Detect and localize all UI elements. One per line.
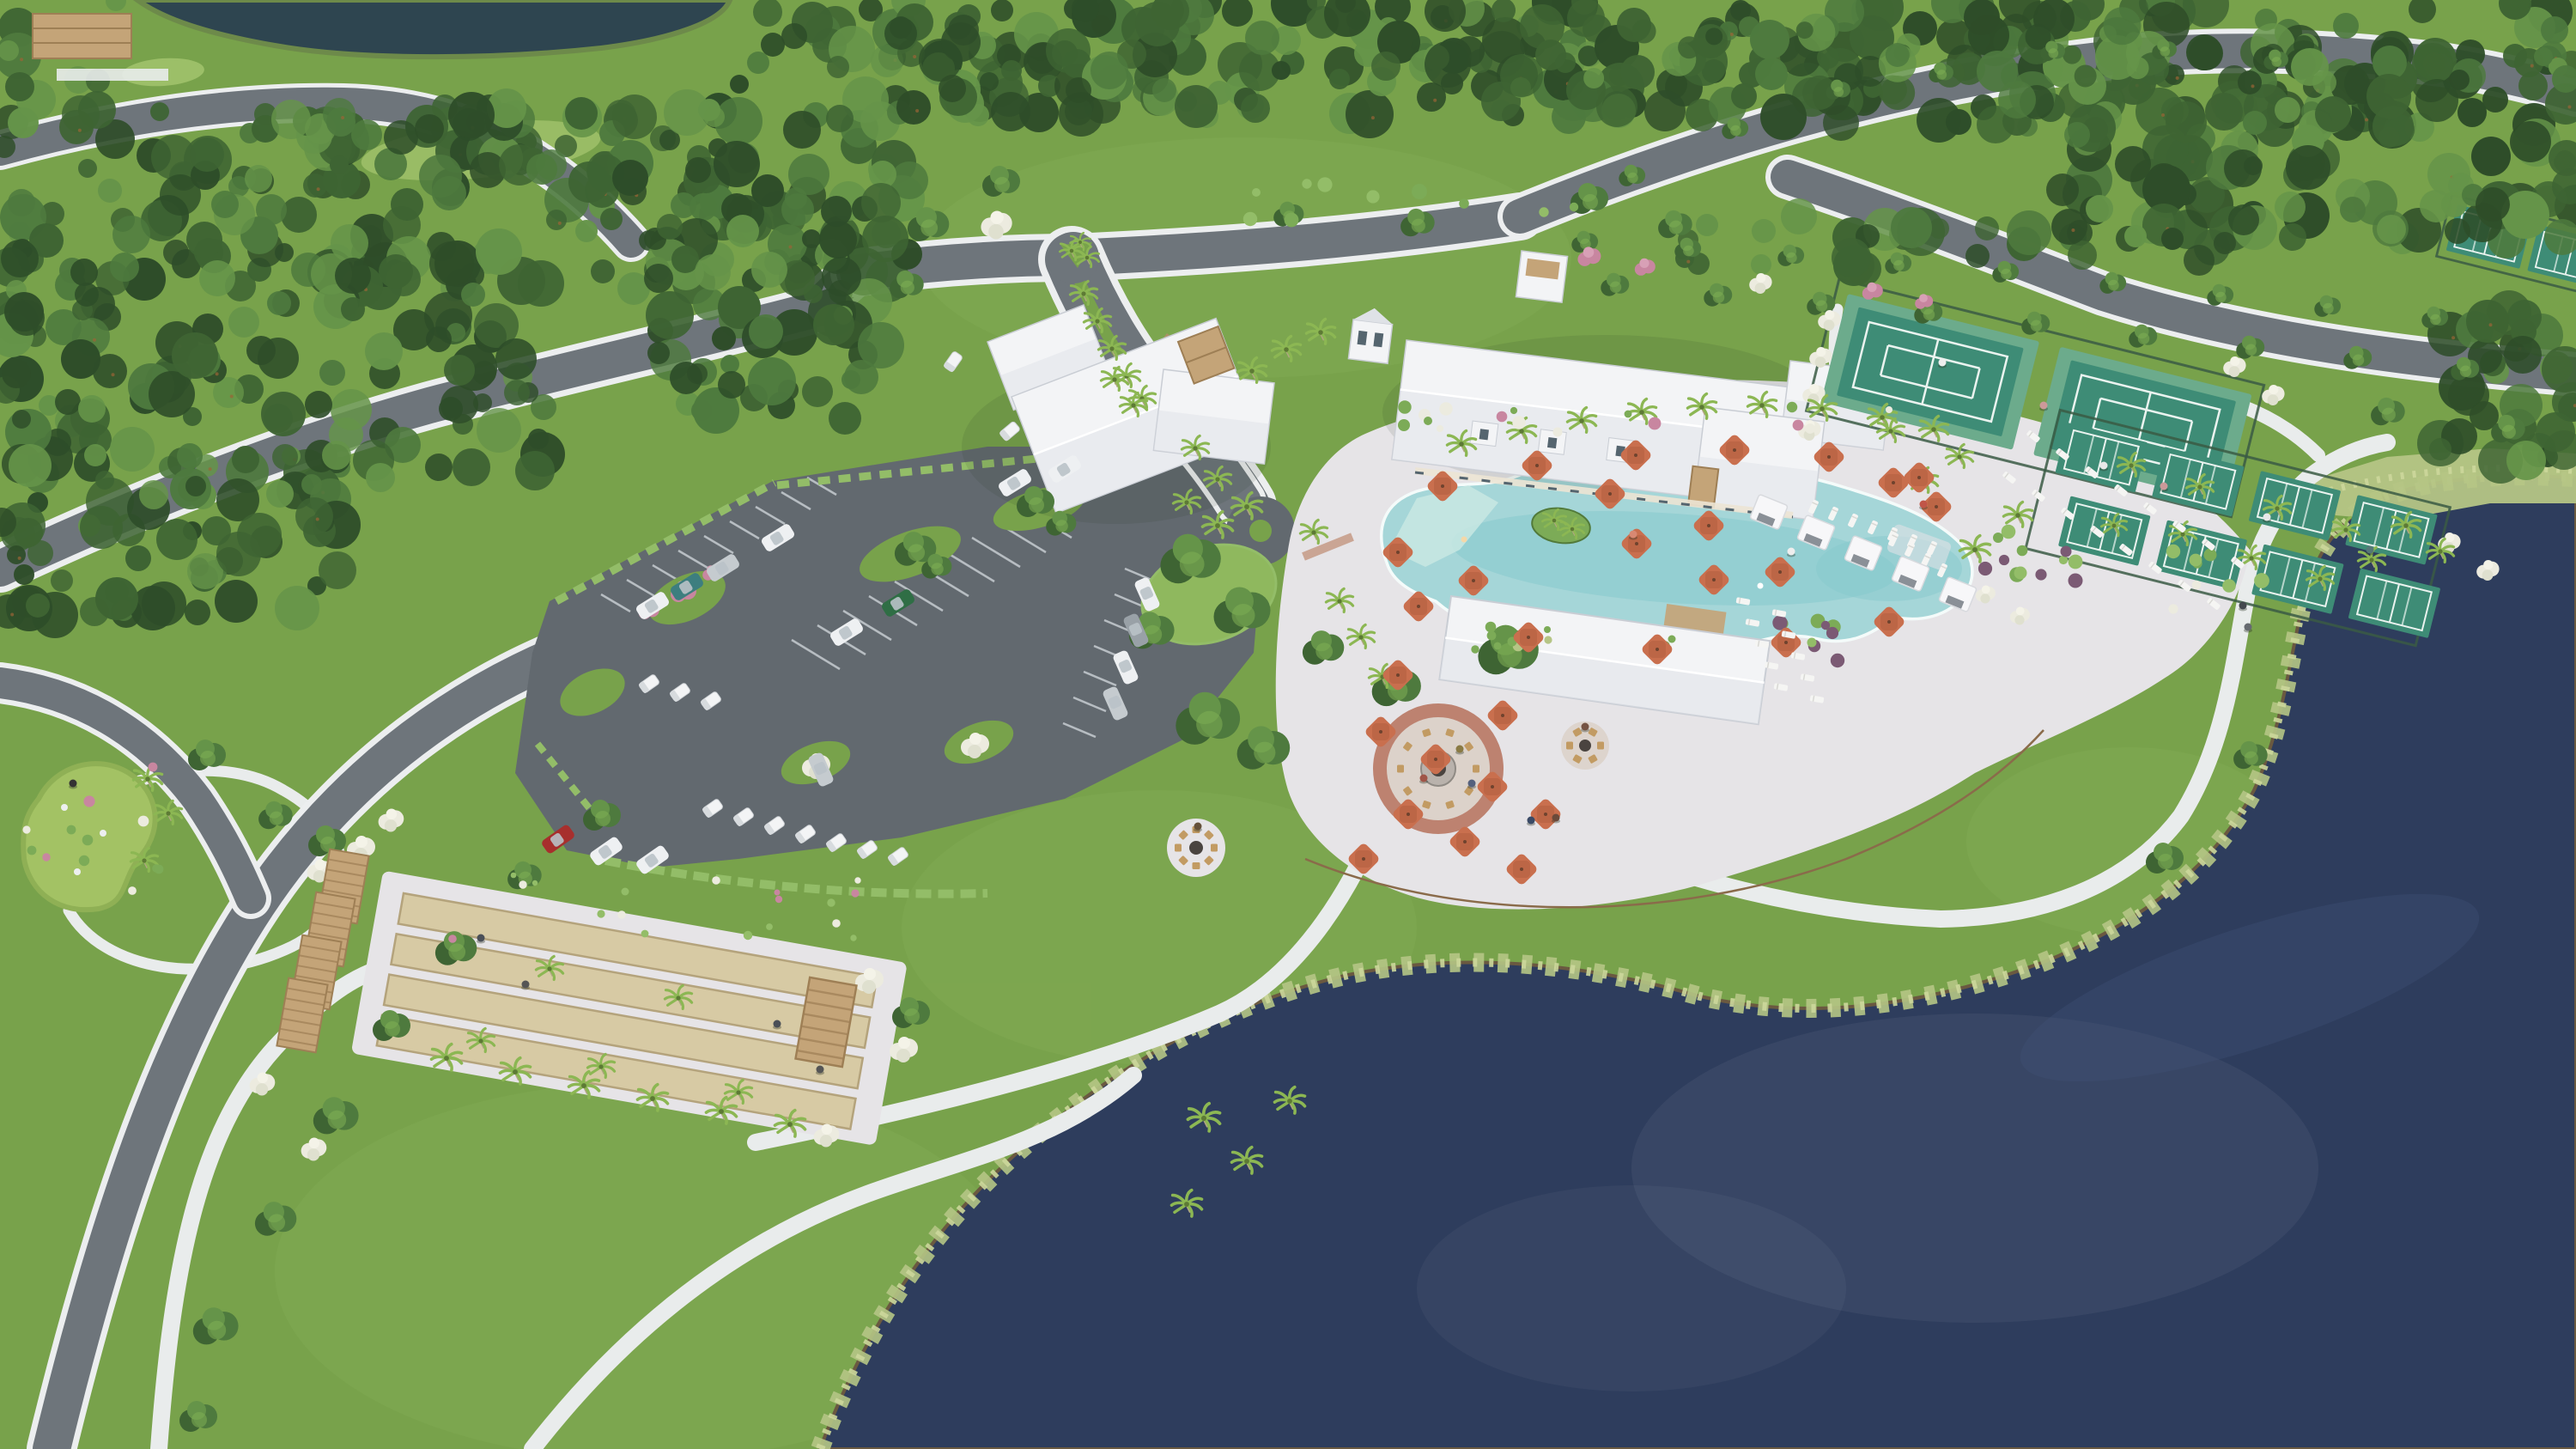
forest-canopy	[271, 100, 311, 139]
forest-canopy	[75, 283, 99, 307]
forest-canopy	[2372, 106, 2414, 147]
forest-canopy	[391, 188, 423, 221]
forest-canopy	[319, 360, 345, 386]
forest-canopy	[528, 429, 549, 449]
pine-trunk	[1433, 99, 1437, 102]
planting-bed	[1821, 621, 1830, 630]
forest-canopy	[515, 451, 555, 490]
bocce-flowers	[511, 873, 517, 879]
forest-canopy	[110, 427, 155, 472]
person	[1788, 548, 1795, 556]
foundation-planting	[1805, 423, 1815, 434]
forest-canopy	[841, 370, 860, 389]
person	[1630, 531, 1637, 539]
forest-canopy	[2445, 218, 2470, 244]
forest-canopy	[2506, 441, 2546, 480]
foundation-planting	[1793, 420, 1804, 431]
pine-trunk	[112, 373, 115, 376]
forest-canopy	[690, 193, 717, 221]
forest-canopy	[704, 107, 725, 127]
forest-canopy	[2340, 197, 2366, 222]
forest-canopy	[2275, 97, 2300, 123]
street-plantings	[1412, 184, 1427, 199]
person	[1456, 746, 1464, 753]
foundation-planting	[1398, 400, 1411, 413]
green-plantings	[79, 855, 89, 866]
forest-canopy	[2115, 146, 2151, 182]
person	[477, 935, 485, 942]
forest-canopy	[1046, 28, 1091, 73]
forest-canopy	[1891, 207, 1932, 248]
adirondack-chair	[1566, 742, 1573, 750]
forest-canopy	[477, 408, 521, 453]
planting-bed	[2192, 581, 2202, 590]
forest-canopy	[991, 92, 1030, 131]
forest-canopy	[78, 159, 97, 178]
forest-canopy	[1272, 61, 1291, 80]
forest-canopy	[2161, 228, 2184, 250]
forest-canopy	[2051, 209, 2087, 245]
planting-bed	[2014, 567, 2027, 580]
forest-canopy	[275, 586, 319, 630]
forest-canopy	[2184, 245, 2215, 276]
forest-canopy	[232, 446, 259, 473]
planting-bed	[2017, 545, 2028, 557]
pine-trunk	[230, 394, 234, 398]
planting-bed	[2254, 573, 2269, 588]
forest-canopy	[429, 241, 474, 286]
forest-canopy	[1886, 43, 1910, 67]
forest-canopy	[827, 56, 849, 78]
forest-canopy	[426, 326, 452, 352]
pool-grasses	[1487, 631, 1497, 641]
forest-canopy	[829, 402, 861, 435]
pine-trunk	[915, 109, 919, 113]
forest-canopy	[896, 90, 931, 125]
planting-bed	[1807, 638, 1817, 648]
forest-canopy	[2534, 47, 2553, 66]
planting-bed	[1978, 562, 1992, 575]
pool-grasses	[1485, 622, 1497, 633]
pool-grasses	[1544, 626, 1551, 633]
foundation-planting	[1553, 428, 1563, 437]
forest-canopy	[2510, 121, 2551, 162]
forest-canopy	[1975, 216, 1999, 240]
pine-trunk	[2071, 228, 2075, 232]
person	[2366, 546, 2374, 554]
forest-canopy	[826, 105, 854, 132]
person	[1420, 775, 1428, 782]
forest-canopy	[295, 497, 333, 535]
forest-canopy	[1731, 83, 1757, 109]
pine-trunk	[2530, 64, 2534, 68]
forest-canopy	[1977, 51, 2018, 92]
forest-canopy	[1678, 36, 1700, 58]
bocce-flowers	[622, 888, 629, 896]
bocce-flowers	[832, 919, 841, 928]
green-plantings	[83, 795, 94, 807]
forest-canopy	[671, 246, 699, 273]
forest-canopy	[1066, 77, 1091, 103]
forest-canopy	[647, 342, 670, 364]
forest-canopy	[2279, 223, 2306, 251]
forest-canopy	[323, 98, 355, 131]
forest-canopy	[2429, 438, 2451, 460]
forest-canopy	[2046, 174, 2079, 206]
forest-canopy	[12, 410, 31, 429]
adirondack-chair	[1397, 765, 1404, 773]
foundation-planting	[1886, 406, 1893, 413]
forest-canopy	[748, 357, 796, 405]
forest-canopy	[2458, 98, 2487, 127]
forest-canopy	[685, 157, 711, 183]
forest-canopy	[980, 72, 999, 91]
forest-canopy	[695, 254, 731, 290]
person	[1552, 814, 1560, 822]
bocce-flowers	[597, 910, 605, 917]
forest-canopy	[8, 107, 39, 138]
forest-canopy	[177, 443, 203, 469]
person	[1582, 723, 1589, 731]
pine-trunk	[341, 116, 344, 119]
forest-canopy	[1329, 69, 1350, 89]
forest-canopy	[1425, 41, 1471, 88]
forest-canopy	[1965, 244, 1990, 268]
pine-trunk	[78, 129, 82, 132]
forest-canopy	[1346, 90, 1394, 138]
forest-canopy	[2503, 44, 2527, 68]
forest-canopy	[425, 454, 453, 481]
forest-canopy	[190, 137, 224, 172]
forest-canopy	[149, 371, 195, 417]
forest-canopy	[2068, 240, 2097, 270]
foundation-planting	[1625, 411, 1632, 418]
forest-canopy	[185, 600, 210, 625]
planting-bed	[2069, 574, 2083, 588]
person	[2160, 483, 2168, 490]
forest-canopy	[256, 194, 287, 225]
forest-canopy	[453, 448, 490, 486]
pine-trunk	[2567, 106, 2571, 109]
forest-canopy	[565, 97, 598, 130]
pine-trunk	[2161, 113, 2165, 117]
forest-canopy	[2507, 300, 2542, 334]
forest-canopy	[2244, 156, 2263, 175]
forest-canopy	[216, 532, 261, 576]
forest-canopy	[95, 471, 114, 490]
forest-canopy	[1245, 21, 1279, 55]
forest-canopy	[95, 577, 138, 620]
forest-canopy	[70, 259, 98, 286]
forest-canopy	[51, 569, 73, 592]
pine-trunk	[789, 246, 793, 249]
forest-canopy	[156, 519, 197, 560]
forest-canopy	[335, 258, 371, 294]
forest-canopy	[691, 400, 712, 421]
forest-canopy	[2186, 34, 2222, 70]
forest-canopy	[2243, 111, 2267, 135]
forest-canopy	[186, 222, 222, 258]
forest-canopy	[781, 23, 807, 49]
green-plantings	[42, 853, 50, 861]
forest-canopy	[600, 208, 623, 230]
forest-canopy	[26, 594, 50, 618]
forest-canopy	[305, 391, 332, 418]
forest-canopy	[2471, 137, 2511, 176]
street-plantings	[1302, 179, 1311, 188]
planting-bed	[2190, 554, 2202, 567]
street-plantings	[1252, 188, 1261, 197]
forest-canopy	[322, 441, 351, 470]
forest-canopy	[2476, 187, 2510, 222]
forest-canopy	[1371, 52, 1400, 81]
foundation-planting	[1437, 425, 1443, 432]
forest-canopy	[802, 376, 833, 407]
pine-trunk	[10, 613, 14, 617]
forest-canopy	[1620, 55, 1655, 89]
foundation-planting	[1398, 419, 1410, 431]
forest-canopy	[1567, 0, 1605, 37]
forest-canopy	[2166, 101, 2207, 143]
forest-canopy	[1644, 90, 1686, 131]
adirondack-chair	[1473, 765, 1479, 773]
pine-trunk	[2489, 323, 2493, 326]
green-plantings	[128, 886, 137, 895]
pine-trunk	[1686, 260, 1690, 264]
forest-canopy	[2423, 52, 2445, 75]
forest-canopy	[939, 75, 966, 102]
pine-trunk	[209, 467, 212, 471]
forest-canopy	[2238, 70, 2262, 94]
forest-canopy	[726, 215, 759, 247]
forest-canopy	[341, 297, 365, 321]
bocce-flowers	[712, 876, 720, 885]
foundation-planting	[1497, 411, 1508, 423]
adirondack-chair	[1175, 844, 1182, 852]
rendering-canvas	[0, 0, 2576, 1449]
adirondack-chair	[1597, 742, 1604, 750]
adirondack-chair	[1193, 862, 1200, 869]
forest-canopy	[749, 314, 783, 349]
forest-canopy	[1796, 21, 1814, 39]
bocce-flowers	[851, 889, 859, 897]
person	[2245, 624, 2252, 631]
bocce-flowers	[850, 935, 856, 941]
forest-canopy	[351, 119, 382, 150]
pine-trunk	[1730, 33, 1734, 36]
foundation-planting	[1424, 417, 1432, 425]
pine-trunk	[93, 338, 96, 342]
forest-canopy	[612, 94, 657, 139]
forest-canopy	[664, 89, 710, 136]
bocce-flowers	[854, 877, 860, 883]
pool-grasses	[1494, 642, 1502, 650]
forest-canopy	[439, 397, 463, 421]
forest-canopy	[2205, 93, 2243, 131]
bocce-flowers	[617, 910, 626, 919]
forest-canopy	[59, 110, 94, 144]
forest-canopy	[822, 257, 861, 296]
foundation-planting	[1649, 417, 1662, 430]
forest-canopy	[319, 551, 356, 589]
forest-canopy	[761, 33, 785, 57]
person	[2263, 514, 2271, 521]
forest-canopy	[2466, 300, 2509, 343]
forest-canopy	[1091, 52, 1128, 89]
planting-bed	[2222, 579, 2236, 593]
foundation-planting	[1439, 402, 1452, 415]
pine-trunk	[2451, 336, 2455, 339]
person	[817, 1066, 824, 1074]
forest-canopy	[1, 240, 39, 277]
street-plantings	[1285, 213, 1299, 228]
forest-canopy	[55, 389, 81, 415]
forest-canopy	[504, 380, 530, 405]
person	[2239, 602, 2247, 610]
bocce-flowers	[775, 896, 782, 903]
pine-trunk	[2251, 84, 2255, 88]
planting-bed	[2002, 525, 2016, 539]
forest-canopy	[228, 307, 259, 338]
bocce-flowers	[641, 930, 649, 938]
forest-canopy	[5, 72, 34, 101]
planting-bed	[2061, 546, 2072, 557]
green-plantings	[138, 816, 149, 827]
forest-canopy	[687, 363, 708, 384]
forest-canopy	[1760, 94, 1807, 140]
person	[522, 981, 530, 989]
forest-canopy	[150, 102, 169, 121]
forest-canopy	[1752, 219, 1776, 243]
foundation-planting	[1510, 407, 1517, 414]
forest-canopy	[781, 193, 814, 226]
adirondack-chair	[1211, 844, 1218, 852]
forest-canopy	[245, 165, 272, 192]
forest-canopy	[461, 283, 485, 307]
forest-canopy	[2, 359, 31, 388]
aerial-rendering	[0, 0, 2576, 1449]
forest-canopy	[14, 518, 43, 547]
forest-canopy	[331, 389, 372, 430]
person	[1939, 359, 1947, 367]
pine-trunk	[1371, 116, 1375, 119]
forest-canopy	[80, 506, 123, 549]
forest-canopy	[1781, 198, 1817, 234]
forest-canopy	[2075, 65, 2097, 88]
forest-canopy	[1417, 82, 1446, 112]
forest-canopy	[821, 196, 852, 227]
forest-canopy	[1152, 78, 1176, 102]
forest-canopy	[2228, 204, 2259, 235]
forest-canopy	[884, 17, 917, 50]
pool-grasses	[1471, 645, 1479, 653]
forest-canopy	[783, 111, 821, 149]
forest-canopy	[546, 210, 567, 230]
forest-canopy	[1092, 15, 1111, 34]
forest-canopy	[384, 120, 418, 155]
forest-canopy	[1241, 94, 1270, 123]
forest-canopy	[98, 179, 122, 203]
forest-canopy	[330, 155, 349, 174]
bocce-flowers	[775, 890, 781, 896]
foundation-planting	[1512, 416, 1525, 429]
person	[1920, 501, 1928, 508]
forest-canopy	[2103, 7, 2141, 45]
pine-trunk	[913, 55, 916, 58]
forest-canopy	[720, 355, 739, 374]
green-plantings	[22, 825, 30, 833]
pine-trunk	[558, 222, 562, 225]
planting-bed	[2204, 549, 2217, 562]
forest-canopy	[199, 260, 235, 296]
forest-canopy	[730, 75, 749, 94]
green-plantings	[67, 825, 76, 835]
planting-bed	[2035, 569, 2046, 580]
forest-canopy	[139, 480, 168, 509]
forest-canopy	[2214, 232, 2236, 254]
forest-canopy	[644, 264, 673, 293]
forest-canopy	[84, 444, 106, 466]
forest-canopy	[575, 220, 598, 242]
person	[1528, 817, 1535, 825]
forest-canopy	[303, 174, 327, 198]
pine-trunk	[18, 557, 21, 560]
pine-trunk	[316, 518, 319, 521]
forest-canopy	[151, 135, 196, 180]
forest-canopy	[419, 155, 462, 198]
forest-canopy	[125, 545, 151, 571]
green-plantings	[155, 865, 164, 874]
forest-canopy	[948, 15, 979, 46]
forest-canopy	[267, 291, 291, 315]
forest-canopy	[1175, 85, 1218, 128]
forest-canopy	[78, 395, 106, 423]
planting-bed	[2069, 555, 2083, 569]
forest-canopy	[7, 545, 26, 564]
forest-canopy	[448, 92, 495, 138]
pine-trunk	[216, 372, 219, 375]
forest-canopy	[518, 260, 564, 307]
forest-canopy	[495, 338, 537, 380]
forest-canopy	[2127, 57, 2149, 79]
planting-bed	[1993, 533, 2003, 543]
forest-canopy	[2377, 215, 2406, 244]
forest-canopy	[2286, 145, 2330, 190]
bocce-flowers	[532, 880, 538, 886]
forest-canopy	[1751, 254, 1771, 275]
forest-canopy	[862, 216, 908, 262]
forest-canopy	[365, 332, 403, 370]
street-plantings	[1570, 203, 1578, 211]
forest-canopy	[991, 0, 1013, 21]
person	[1194, 823, 1202, 831]
bocce-flowers	[744, 931, 752, 940]
forest-canopy	[861, 183, 901, 222]
forest-canopy	[1583, 68, 1604, 88]
planting-bed	[2166, 545, 2180, 558]
forest-canopy	[14, 564, 34, 585]
planting-bed	[1831, 654, 1844, 667]
person	[774, 1020, 781, 1028]
forest-canopy	[2063, 46, 2081, 64]
forest-canopy	[1832, 238, 1871, 277]
forest-canopy	[415, 114, 444, 143]
bocce-flowers	[519, 880, 526, 888]
forest-canopy	[2086, 195, 2113, 222]
forest-canopy	[2291, 48, 2329, 86]
forest-canopy	[1578, 46, 1599, 66]
pool-grasses	[1544, 636, 1552, 643]
